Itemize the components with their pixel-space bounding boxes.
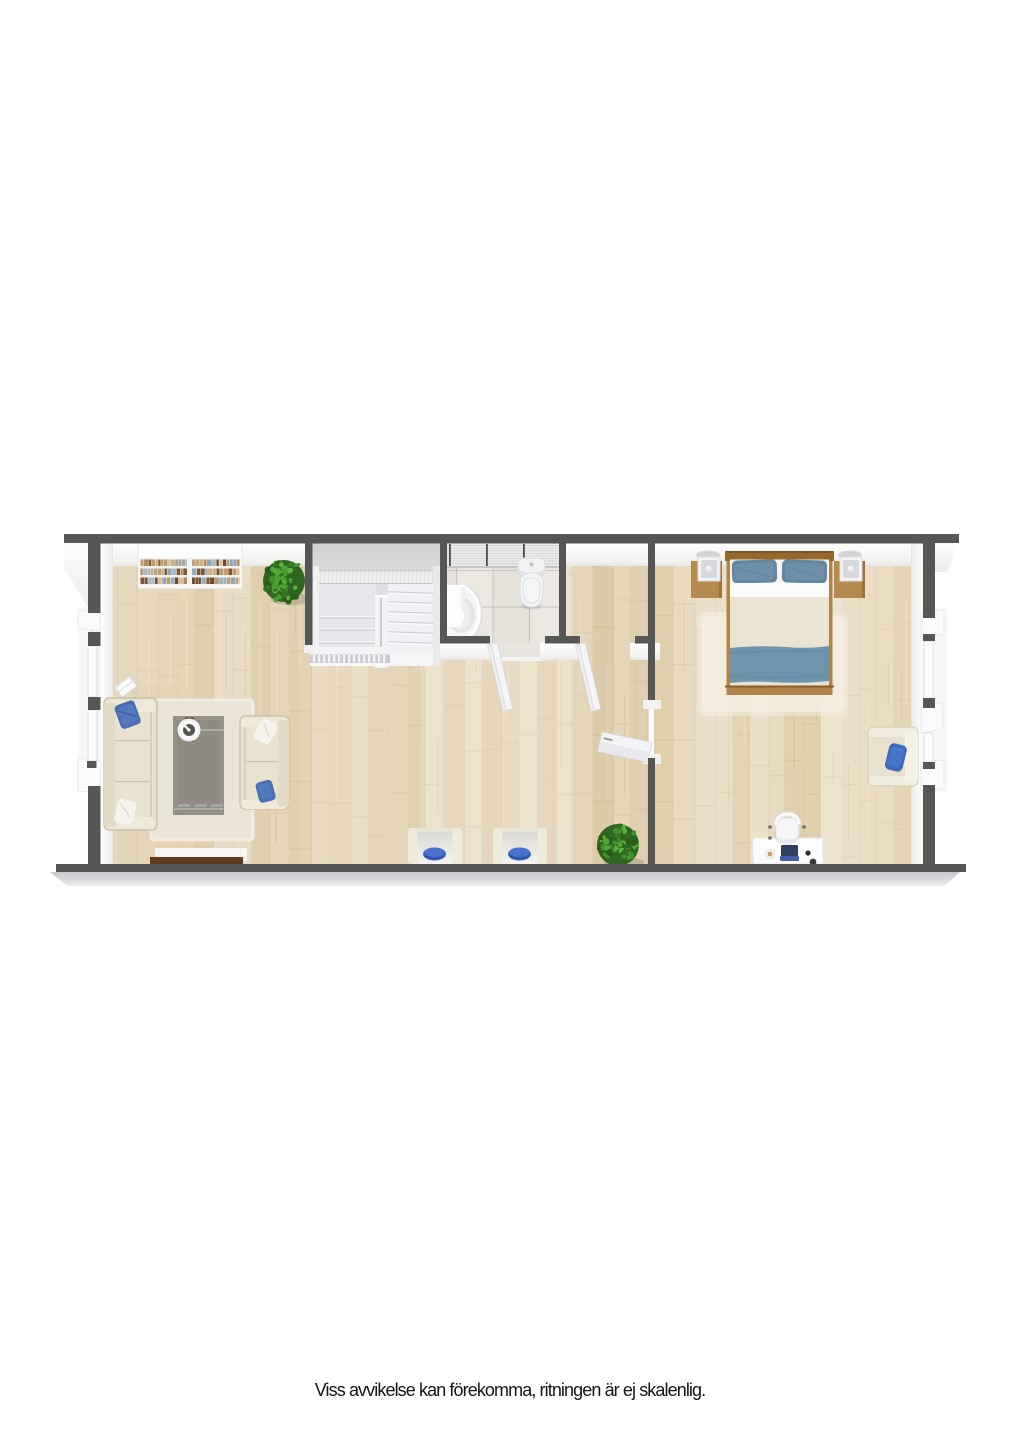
svg-text:Viss avvikelse kan förekomma,: Viss avvikelse kan förekomma, ritningen …	[315, 1380, 705, 1400]
